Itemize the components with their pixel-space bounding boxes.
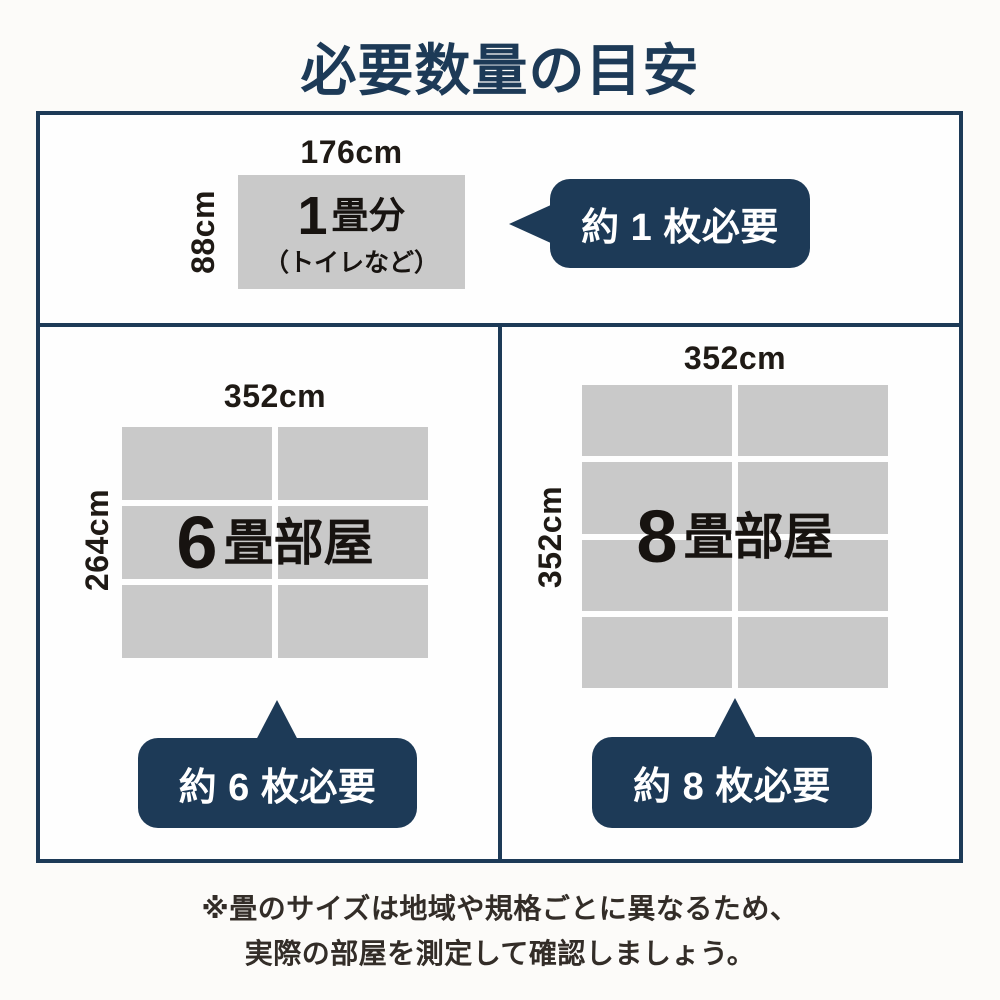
one-tatami-room-label: 1 畳分 [297, 189, 405, 243]
tatami-cell [122, 427, 272, 500]
tatami-cell [582, 617, 732, 688]
tatami-cell [738, 462, 888, 533]
footnote-line-1: ※畳のサイズは地域や規格ごとに異なるため、 [0, 887, 1000, 927]
one-tatami-width-label: 176cm [238, 134, 465, 171]
six-tatami-height-label: 264cm [79, 460, 115, 620]
tatami-cell [738, 540, 888, 611]
tatami-cell [278, 427, 428, 500]
eight-tatami-height-label: 352cm [532, 457, 568, 617]
six-tatami-bubble-tail-icon [255, 700, 299, 742]
tatami-cell [122, 585, 272, 658]
eight-tatami-badge: 約 8 枚必要 [592, 737, 872, 828]
tatami-cell [278, 506, 428, 579]
six-tatami-width-label: 352cm [122, 378, 428, 415]
one-tatami-room-note: （トイレなど） [264, 251, 439, 276]
one-tatami-badge: 約 1 枚必要 [550, 179, 810, 268]
tatami-cell [122, 506, 272, 579]
tatami-cell [738, 617, 888, 688]
vertical-divider [498, 323, 502, 863]
eight-tatami-badge-label: 約 8 枚必要 [633, 755, 831, 810]
six-tatami-badge: 約 6 枚必要 [138, 738, 417, 828]
one-tatami-room-number: 1 [297, 189, 327, 243]
one-tatami-height-label: 88cm [185, 172, 221, 292]
tatami-cell [278, 585, 428, 658]
one-tatami-badge-label: 約 1 枚必要 [581, 196, 779, 251]
eight-tatami-width-label: 352cm [582, 340, 888, 377]
infographic-page: 必要数量の目安 176cm 88cm 1 畳分 （トイレなど） 約 1 枚必要 … [0, 0, 1000, 1000]
one-tatami-room-suffix: 畳分 [332, 197, 406, 234]
six-tatami-badge-label: 約 6 枚必要 [179, 756, 377, 811]
tatami-cell [582, 462, 732, 533]
eight-tatami-grid [582, 385, 888, 688]
footnote-line-2: 実際の部屋を測定して確認しましょう。 [0, 932, 1000, 972]
tatami-cell [738, 385, 888, 456]
tatami-cell [582, 540, 732, 611]
eight-tatami-bubble-tail-icon [713, 698, 757, 740]
one-tatami-rect: 1 畳分 （トイレなど） [238, 175, 465, 289]
one-tatami-bubble-tail-icon [509, 204, 553, 244]
tatami-cell [582, 385, 732, 456]
six-tatami-grid [122, 427, 428, 658]
page-title: 必要数量の目安 [0, 26, 1000, 107]
